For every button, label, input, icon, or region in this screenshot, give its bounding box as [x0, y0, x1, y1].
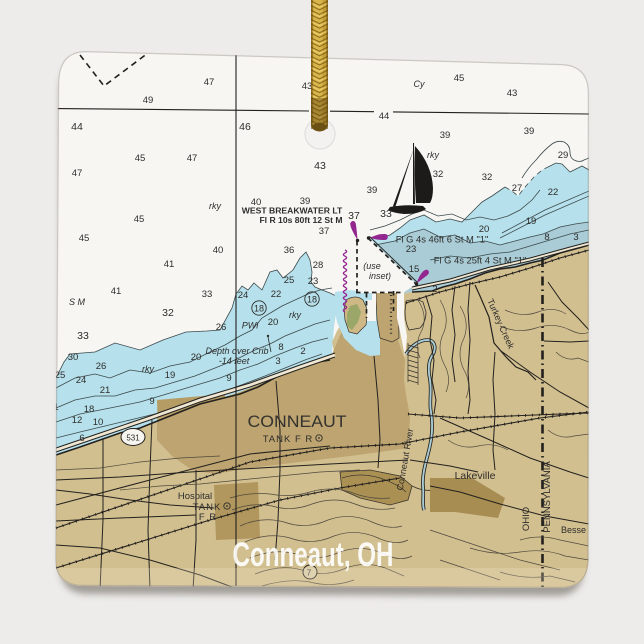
svg-text:3: 3 — [573, 232, 578, 243]
svg-text:45: 45 — [135, 153, 146, 164]
svg-text:26: 26 — [96, 361, 107, 372]
svg-text:21: 21 — [100, 385, 111, 396]
svg-text:19: 19 — [165, 370, 176, 381]
svg-text:9: 9 — [226, 373, 231, 384]
svg-text:2: 2 — [432, 284, 437, 295]
svg-text:29: 29 — [558, 150, 569, 161]
svg-text:Cy: Cy — [414, 79, 425, 89]
svg-text:24: 24 — [238, 290, 249, 301]
svg-text:41: 41 — [164, 259, 175, 270]
svg-text:46: 46 — [239, 121, 251, 133]
svg-text:PWl: PWl — [242, 321, 259, 331]
svg-text:S M: S M — [69, 297, 86, 307]
svg-text:47: 47 — [187, 153, 198, 164]
svg-text:9: 9 — [149, 396, 154, 407]
svg-text:36: 36 — [284, 245, 295, 256]
svg-text:37: 37 — [319, 226, 330, 237]
svg-text:F R: F R — [199, 512, 217, 523]
svg-text:23: 23 — [406, 244, 417, 255]
svg-text:39: 39 — [524, 126, 535, 137]
svg-text:33: 33 — [77, 330, 89, 342]
svg-text:Depth over Crib: Depth over Crib — [205, 346, 268, 356]
svg-text:43: 43 — [302, 81, 313, 92]
svg-text:32: 32 — [162, 307, 174, 319]
svg-text:Hospital: Hospital — [178, 491, 212, 502]
svg-text:15: 15 — [409, 264, 420, 275]
svg-text:26: 26 — [216, 322, 227, 333]
svg-text:23: 23 — [308, 276, 319, 287]
svg-text:3: 3 — [275, 356, 280, 367]
svg-text:33: 33 — [380, 208, 392, 220]
svg-text:Fl G 4s 25ft 4 St M "1": Fl G 4s 25ft 4 St M "1" — [434, 255, 527, 266]
svg-text:8: 8 — [544, 232, 549, 243]
svg-text:Fl R 10s 80ft 12 St M: Fl R 10s 80ft 12 St M — [259, 215, 342, 225]
svg-text:33: 33 — [202, 289, 213, 300]
svg-text:30: 30 — [68, 352, 79, 363]
svg-text:44: 44 — [379, 111, 390, 122]
svg-text:39: 39 — [367, 185, 378, 196]
svg-text:49: 49 — [143, 95, 154, 106]
svg-text:20: 20 — [268, 317, 279, 328]
svg-text:rky: rky — [427, 150, 439, 160]
svg-text:WEST BREAKWATER LT: WEST BREAKWATER LT — [242, 206, 343, 216]
svg-text:47: 47 — [204, 77, 215, 88]
svg-text:44: 44 — [71, 121, 83, 133]
svg-text:19: 19 — [526, 216, 537, 227]
svg-text:8: 8 — [278, 342, 283, 353]
svg-text:18: 18 — [307, 295, 317, 305]
svg-text:37: 37 — [348, 210, 360, 222]
svg-text:rky: rky — [209, 201, 221, 211]
svg-text:2: 2 — [300, 346, 305, 357]
svg-text:39: 39 — [440, 130, 451, 141]
svg-text:inset): inset) — [369, 271, 391, 281]
svg-text:CONNEAUT: CONNEAUT — [248, 413, 347, 431]
svg-text:45: 45 — [134, 214, 145, 225]
svg-text:32: 32 — [433, 169, 444, 180]
svg-text:12: 12 — [72, 415, 83, 426]
svg-text:47: 47 — [72, 168, 83, 179]
svg-text:rky: rky — [142, 364, 154, 374]
svg-text:Fl G 4s 46ft 6 St M "1": Fl G 4s 46ft 6 St M "1" — [396, 234, 489, 245]
svg-text:18: 18 — [84, 404, 95, 415]
svg-text:25: 25 — [284, 275, 295, 286]
svg-text:43: 43 — [507, 88, 518, 99]
svg-text:20: 20 — [191, 352, 202, 363]
svg-text:Besse: Besse — [561, 525, 586, 535]
svg-text:PENNSYLVANIA: PENNSYLVANIA — [542, 461, 553, 533]
svg-text:32: 32 — [482, 172, 493, 183]
svg-text:6: 6 — [79, 433, 84, 444]
svg-text:41: 41 — [111, 286, 122, 297]
svg-text:45: 45 — [454, 73, 465, 84]
svg-text:10: 10 — [93, 417, 104, 428]
svg-text:(use: (use — [363, 261, 381, 271]
svg-text:22: 22 — [548, 187, 559, 198]
svg-text:45: 45 — [79, 233, 90, 244]
svg-text:TANK F R: TANK F R — [263, 434, 314, 445]
svg-text:43: 43 — [314, 160, 326, 172]
svg-text:-14 feet: -14 feet — [219, 356, 250, 366]
svg-text:rky: rky — [289, 310, 301, 320]
svg-text:22: 22 — [271, 289, 282, 300]
svg-text:24: 24 — [76, 375, 87, 386]
svg-text:OHIO: OHIO — [521, 507, 532, 531]
svg-text:531: 531 — [126, 434, 140, 443]
svg-text:Lakeville: Lakeville — [455, 470, 496, 482]
svg-text:40: 40 — [213, 245, 224, 256]
svg-text:18: 18 — [254, 304, 264, 314]
svg-text:27: 27 — [512, 183, 523, 194]
svg-text:28: 28 — [313, 260, 324, 271]
